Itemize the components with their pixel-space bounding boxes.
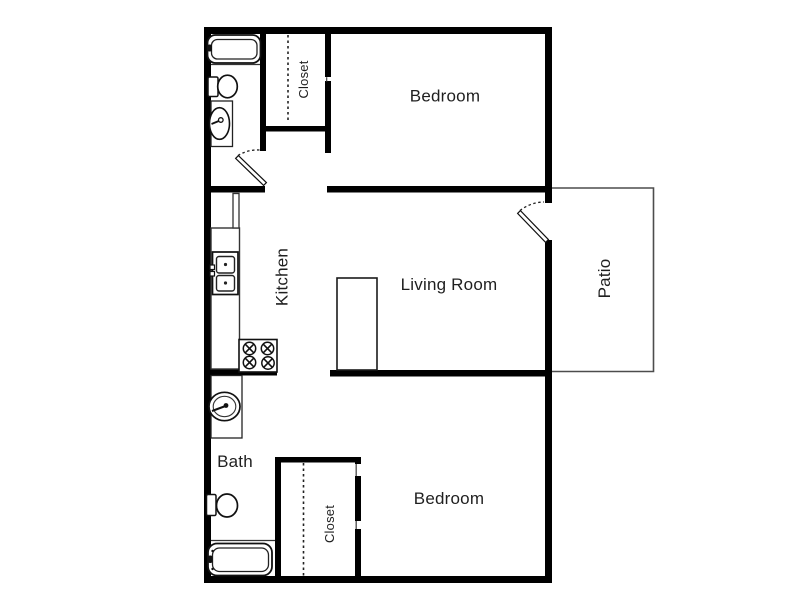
toilet-bowl bbox=[218, 75, 238, 98]
tub-faucet bbox=[208, 556, 213, 564]
door-jamb bbox=[356, 521, 357, 529]
room-label-bedroom-bottom: Bedroom bbox=[414, 489, 484, 508]
wall-closet-top-right-a bbox=[325, 34, 331, 77]
room-label-kitchen: Kitchen bbox=[273, 248, 292, 306]
kitchen-counter bbox=[211, 228, 240, 369]
drain bbox=[224, 281, 227, 284]
toilet-bowl bbox=[217, 494, 238, 517]
room-label-bath: Bath bbox=[217, 452, 253, 471]
bathtub-icon bbox=[208, 541, 275, 576]
tub-faucet bbox=[208, 45, 213, 52]
door-leaf bbox=[518, 211, 549, 243]
wall-right-upper bbox=[545, 27, 552, 203]
tub-inner bbox=[213, 548, 269, 572]
toilet-tank bbox=[208, 77, 218, 97]
sink-drain bbox=[219, 118, 224, 123]
floor-plan-drawing: Bedroom Living Room Bedroom Bath Kitchen… bbox=[0, 0, 800, 600]
counter-outline bbox=[211, 228, 240, 369]
interior-walls bbox=[204, 34, 552, 583]
door-leaf bbox=[236, 156, 267, 186]
room-label-closet-bottom: Closet bbox=[322, 505, 337, 543]
room-label-bedroom-top: Bedroom bbox=[410, 87, 480, 106]
vanity-sink-icon bbox=[209, 376, 242, 439]
room-label-living-room: Living Room bbox=[401, 275, 498, 294]
wall-closet-bottom-left bbox=[275, 457, 281, 583]
wall-right-lower bbox=[545, 240, 552, 583]
refrigerator-outline bbox=[233, 194, 239, 229]
room-label-closet-top: Closet bbox=[296, 60, 311, 98]
wall-closet-top-bottom bbox=[260, 126, 331, 132]
wall-closet-bottom-right-c bbox=[355, 529, 361, 583]
door-jamb bbox=[326, 77, 327, 81]
wall-closet-top-right-b bbox=[325, 81, 331, 153]
floor-plan: Bedroom Living Room Bedroom Bath Kitchen… bbox=[0, 0, 800, 600]
burner bbox=[243, 356, 255, 368]
bathtub-icon bbox=[208, 35, 261, 65]
sink-drain bbox=[224, 403, 229, 408]
burner bbox=[262, 357, 274, 369]
toilet-icon bbox=[208, 75, 237, 98]
stove-cooktop-icon bbox=[239, 340, 277, 373]
door-swing-arc bbox=[238, 150, 260, 156]
wall-closet-bottom-right-b bbox=[355, 476, 361, 521]
wall-closet-bottom-right-a bbox=[355, 457, 361, 464]
drain bbox=[224, 263, 227, 266]
toilet-icon bbox=[207, 494, 238, 517]
wall-bottom bbox=[204, 576, 552, 583]
door-swing-arc bbox=[520, 202, 544, 211]
patio-door bbox=[518, 202, 549, 242]
burner bbox=[243, 342, 255, 354]
bar-outline bbox=[337, 278, 377, 370]
refrigerator-icon bbox=[233, 194, 239, 229]
wall-below-bathroom bbox=[204, 186, 265, 193]
wall-top bbox=[204, 27, 552, 34]
breakfast-bar bbox=[337, 278, 377, 370]
tub-handle bbox=[211, 550, 213, 552]
door-jamb bbox=[356, 464, 357, 476]
bathroom-door bbox=[236, 150, 267, 185]
wall-closet-bottom-top bbox=[275, 457, 360, 463]
exterior-walls bbox=[204, 27, 552, 583]
tub-inner bbox=[212, 40, 258, 60]
faucet-handle bbox=[210, 265, 215, 270]
toilet-tank bbox=[207, 495, 217, 516]
faucet-handle bbox=[210, 272, 215, 277]
wall-living-bedroom bbox=[330, 370, 552, 377]
wall-hall-living bbox=[327, 186, 552, 193]
room-label-patio: Patio bbox=[595, 259, 614, 299]
vanity-sink-icon bbox=[210, 101, 233, 147]
burner bbox=[261, 342, 273, 354]
double-basin-sink-icon bbox=[210, 252, 238, 295]
tub-handle bbox=[211, 568, 213, 570]
